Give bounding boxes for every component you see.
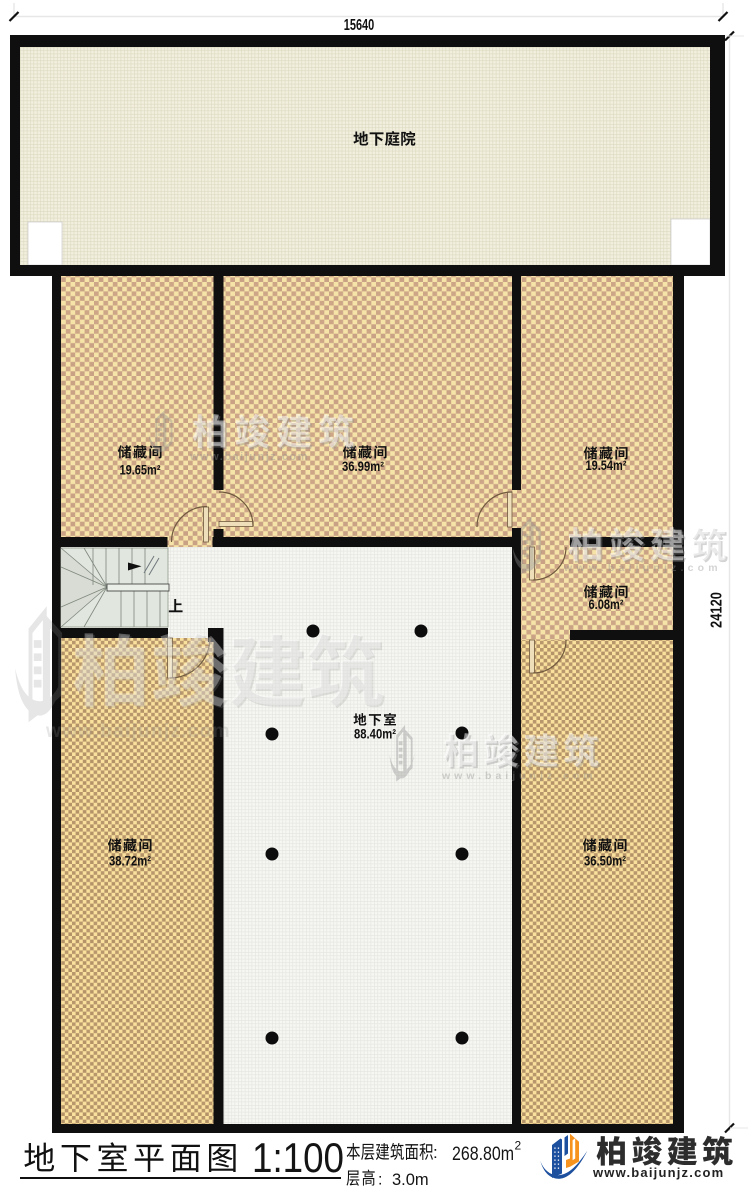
svg-text:1:100: 1:100: [252, 1134, 344, 1181]
svg-text:36.50m²: 36.50m²: [584, 854, 626, 869]
svg-text:268.80m: 268.80m: [452, 1143, 514, 1165]
svg-text::: :: [378, 1172, 382, 1189]
svg-text:www.baijunjz.com: www.baijunjz.com: [563, 562, 722, 574]
svg-text:www.baijunjz.com: www.baijunjz.com: [189, 451, 309, 463]
svg-text:19.65m²: 19.65m²: [120, 463, 161, 478]
svg-text:36.99m²: 36.99m²: [342, 459, 384, 474]
svg-text:3.0m: 3.0m: [392, 1171, 429, 1189]
svg-text:www.baijunjz.com: www.baijunjz.com: [441, 770, 597, 782]
svg-text:6.08m²: 6.08m²: [589, 597, 624, 612]
svg-text:2: 2: [515, 1139, 522, 1153]
svg-text:19.54m²: 19.54m²: [586, 458, 627, 473]
svg-text:www.baijunjz.com: www.baijunjz.com: [592, 1165, 724, 1180]
svg-text:www.baijunjz.com: www.baijunjz.com: [45, 721, 231, 742]
svg-text:15640: 15640: [344, 17, 375, 34]
svg-text:88.40m²: 88.40m²: [354, 727, 396, 742]
svg-text::: :: [433, 1143, 438, 1162]
svg-text:38.72m²: 38.72m²: [109, 854, 151, 869]
svg-text:24120: 24120: [709, 592, 726, 628]
